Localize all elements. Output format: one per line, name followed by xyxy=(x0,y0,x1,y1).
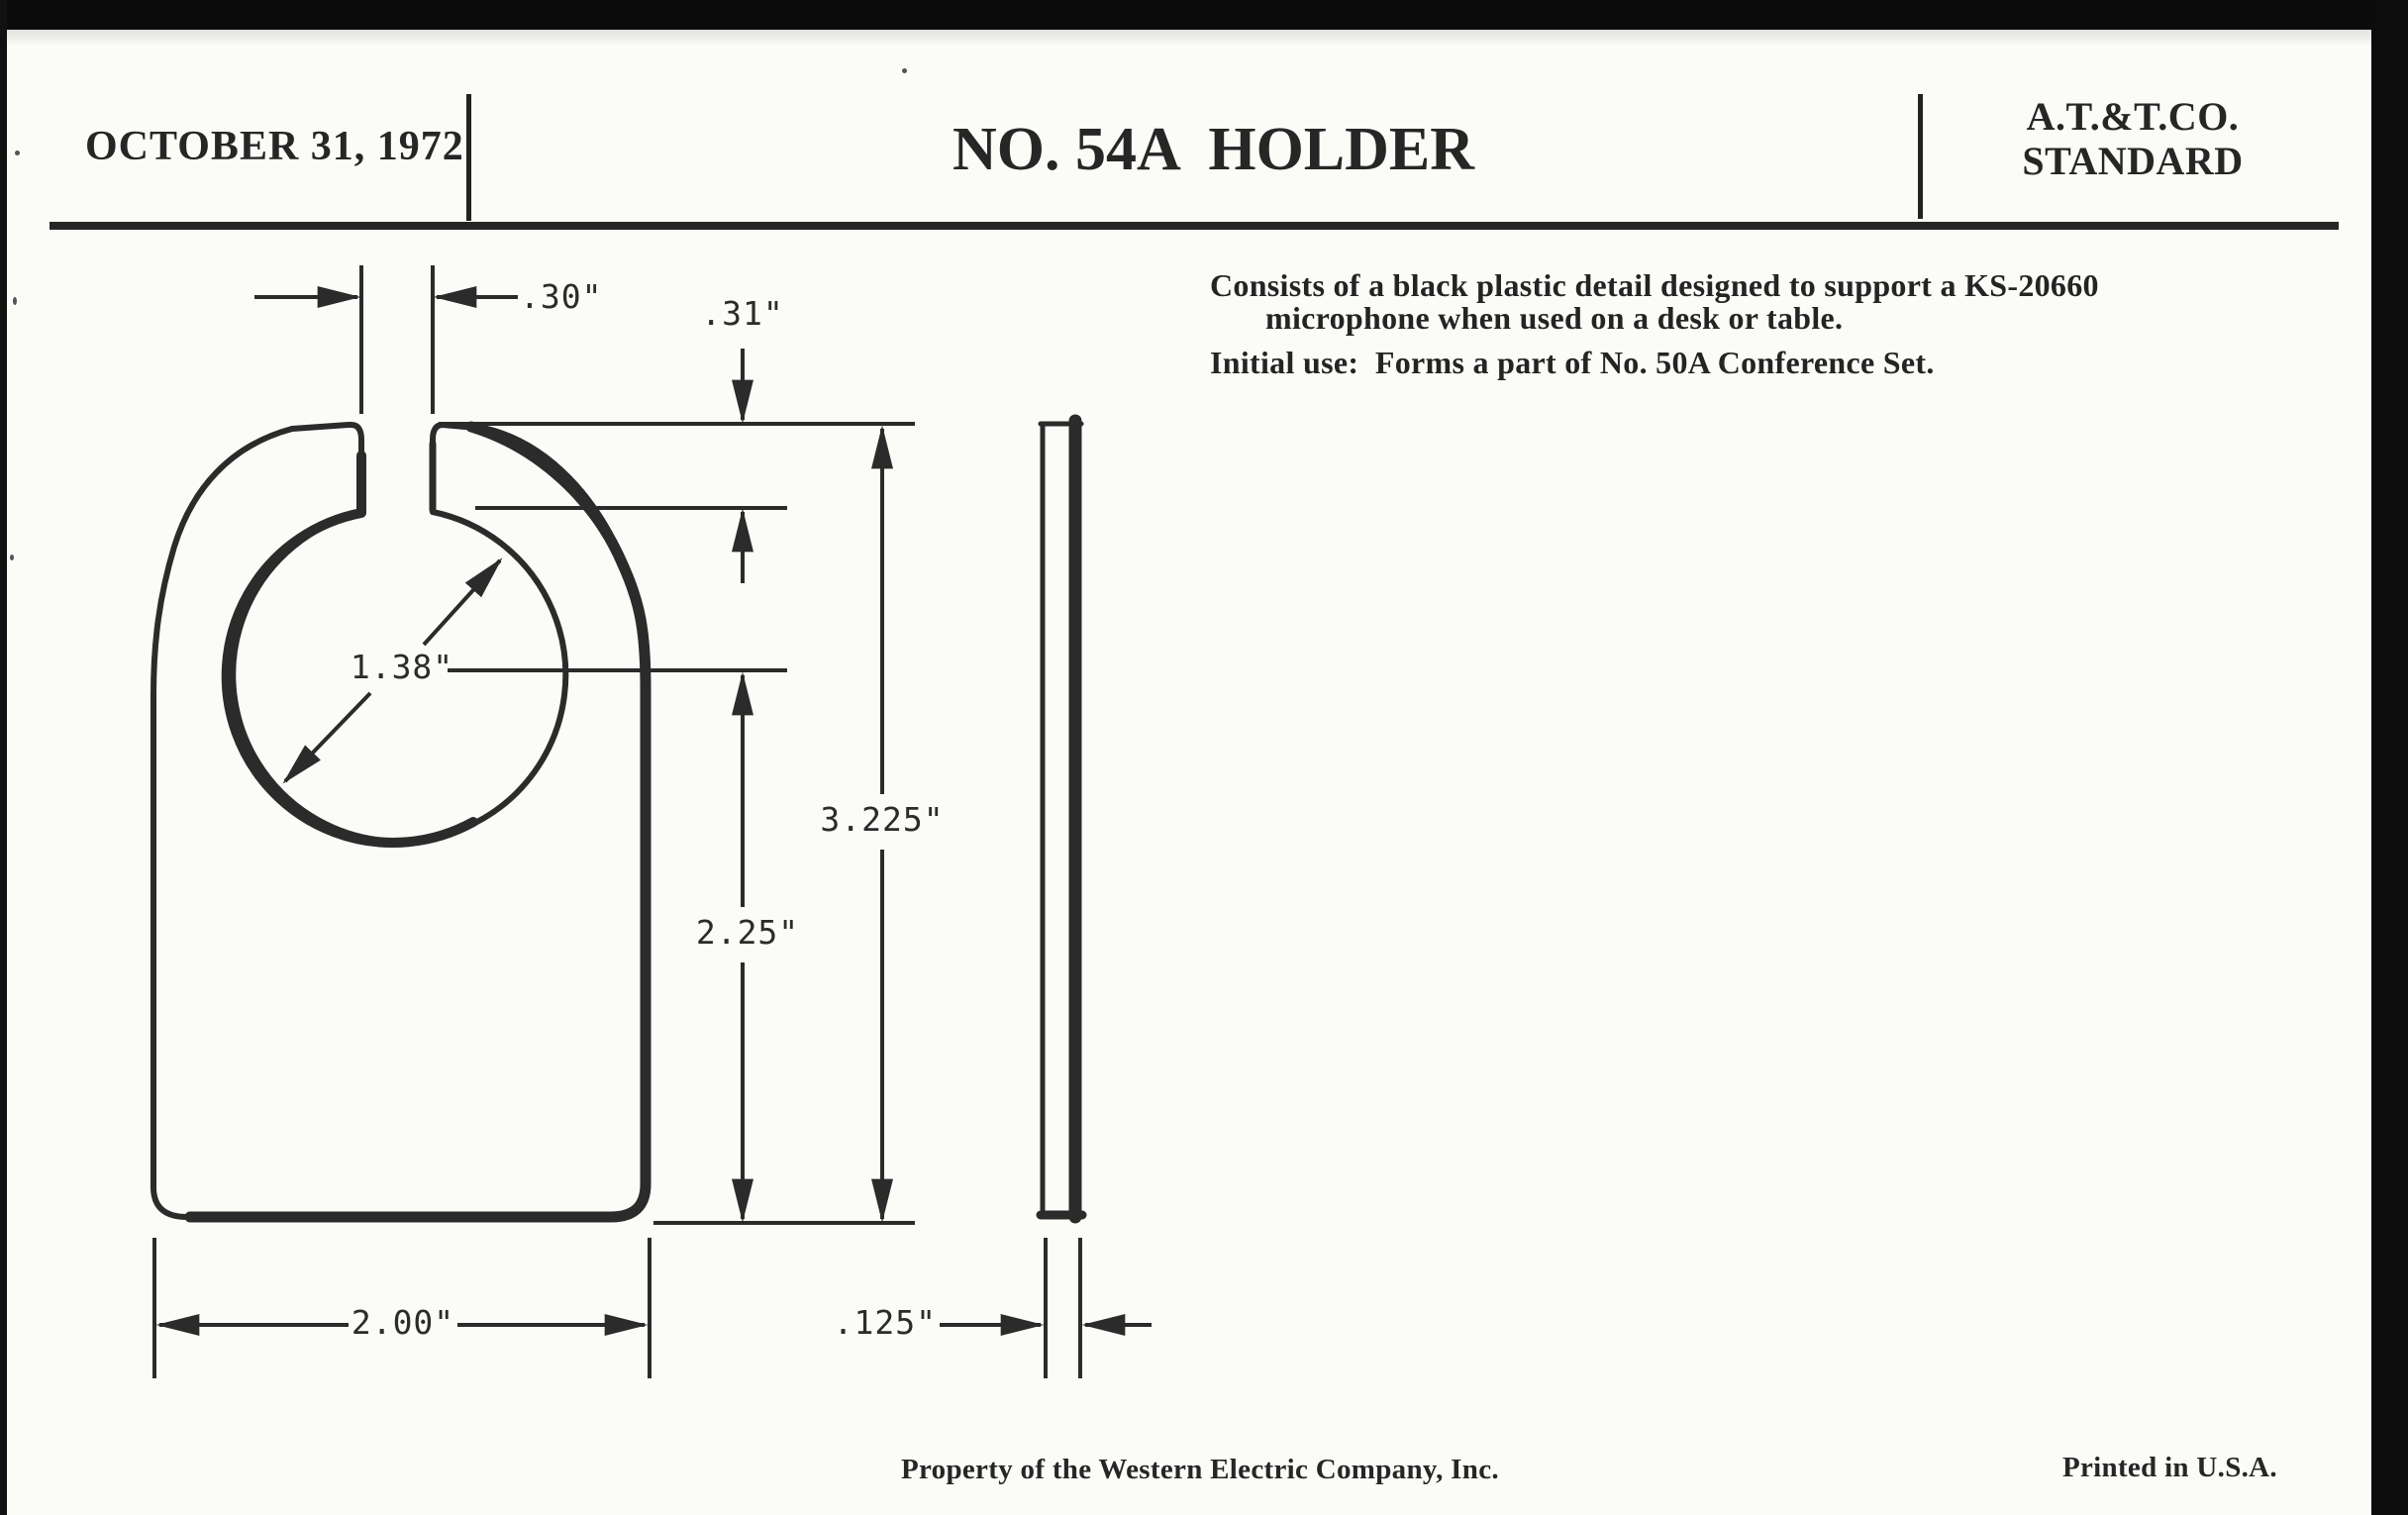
hole-diameter-arrow-ne xyxy=(424,560,500,645)
hole-diameter-arrow-sw xyxy=(285,693,370,781)
front-view-thick-right xyxy=(190,427,646,1217)
dimension-slot-width: .30" xyxy=(520,277,602,316)
printed-in-usa: Printed in U.S.A. xyxy=(2062,1452,2277,1484)
dimension-thickness: .125" xyxy=(832,1303,937,1342)
dimension-overall-width: 2.00" xyxy=(344,1303,462,1342)
dimension-overall-height: 3.225" xyxy=(806,800,958,839)
property-notice: Property of the Western Electric Company… xyxy=(901,1454,1499,1486)
front-view-outline xyxy=(153,425,646,1217)
document-page: OCTOBER 31, 1972 NO. 54A HOLDER A.T.&T.C… xyxy=(0,0,2408,1515)
dimension-center-to-bottom: 2.25" xyxy=(690,913,805,952)
dimension-hole-diameter: 1.38" xyxy=(347,648,457,686)
dimension-slot-depth: .31" xyxy=(695,294,790,333)
technical-drawing-canvas xyxy=(0,0,2408,1515)
side-view-outline xyxy=(1041,421,1082,1217)
